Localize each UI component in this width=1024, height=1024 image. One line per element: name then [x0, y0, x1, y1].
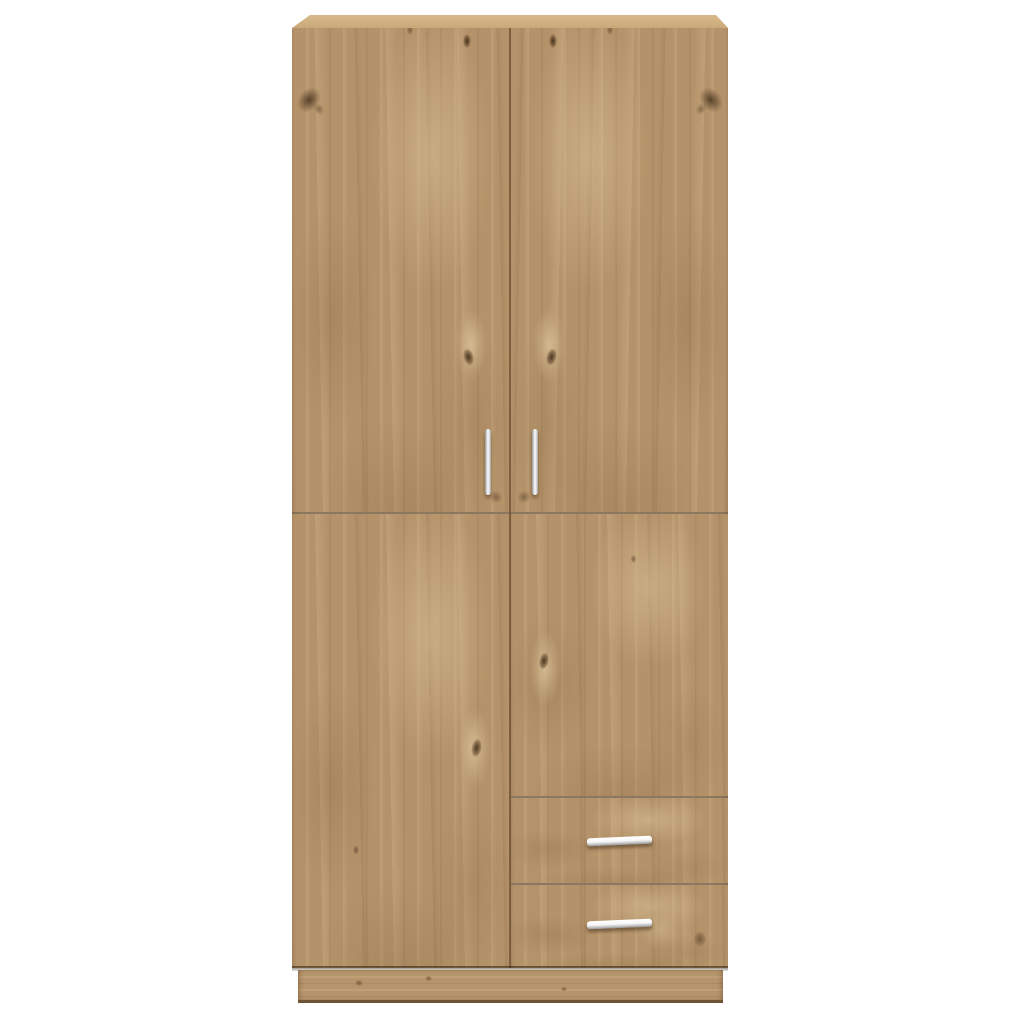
wood-knot: [292, 75, 333, 125]
wood-knot: [560, 986, 568, 992]
wood-knot: [424, 975, 433, 982]
panel-seam-horizontal: [292, 512, 728, 514]
wardrobe-top-panel: [292, 15, 728, 28]
wardrobe-front: [292, 28, 728, 968]
wood-knot: [406, 28, 414, 36]
wood-knot: [352, 844, 360, 856]
wood-grain-figure: [628, 903, 692, 957]
upper-left-door: [292, 28, 510, 512]
door-handle-left: [485, 429, 491, 495]
wood-knot: [548, 32, 558, 50]
wood-knot: [630, 554, 637, 564]
wood-knot: [462, 32, 472, 50]
door-handle-right: [532, 429, 538, 495]
drawer-seam: [510, 796, 728, 798]
drawer-seam: [510, 883, 728, 885]
wood-grain-figure: [450, 296, 492, 394]
panel-seam-vertical: [509, 28, 511, 968]
lower-left-door: [292, 514, 510, 968]
lower-right-door: [510, 514, 728, 796]
product-photo: [0, 0, 1024, 1024]
wood-knot: [687, 75, 728, 125]
wood-knot: [354, 979, 364, 987]
wood-knot: [606, 28, 614, 36]
plinth: [298, 970, 723, 1003]
upper-right-door: [510, 28, 728, 512]
wood-grain-figure: [528, 296, 570, 394]
wood-knot: [692, 929, 708, 949]
